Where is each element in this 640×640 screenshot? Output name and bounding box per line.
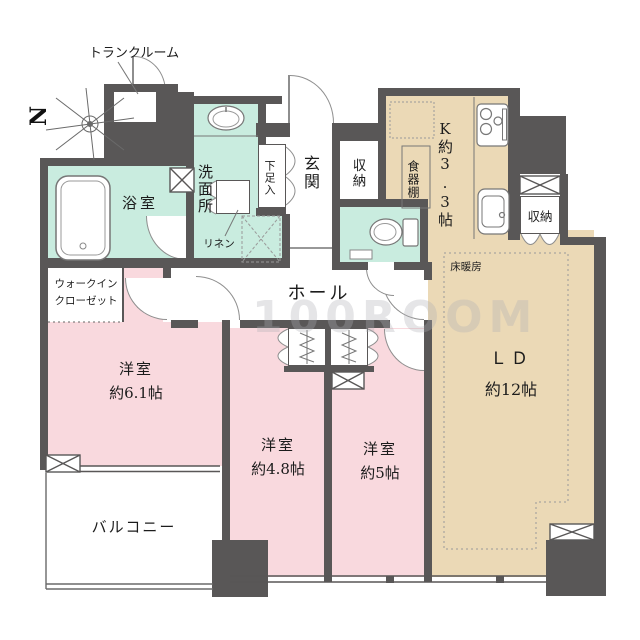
wall-stub <box>386 576 394 583</box>
wall <box>176 96 282 104</box>
bedroom1-name-label: 洋室 <box>80 358 192 379</box>
wall <box>594 520 606 542</box>
living-name-label: ＬＤ <box>464 344 558 369</box>
compass-north-label: N <box>26 106 52 126</box>
kitchen-label: K約3.3帖 <box>437 120 452 220</box>
wall <box>394 262 428 270</box>
washroom-label: 洗面所 <box>197 146 212 232</box>
wall <box>424 262 432 280</box>
wall <box>560 174 568 240</box>
wall <box>282 214 290 266</box>
wall <box>332 262 368 270</box>
bedroom3-name-label: 洋室 <box>334 438 426 459</box>
bedroom2-name-label: 洋室 <box>232 434 324 455</box>
trunk-room-label: トランクルーム <box>76 42 192 61</box>
wall <box>256 123 290 137</box>
watermark: 100ROOM <box>252 292 538 343</box>
living-size-label: 約12帖 <box>464 376 558 400</box>
wall-column <box>520 116 566 174</box>
wall <box>186 96 194 268</box>
entrance-door-arc <box>290 75 334 123</box>
entrance-storage-label: 収納 <box>350 149 364 197</box>
wic-label-line1: ウォークイン <box>46 276 126 291</box>
wall <box>171 320 198 328</box>
living-dining-floor <box>428 230 594 577</box>
toilet-floor <box>340 207 420 262</box>
bedroom2-door-arc <box>196 276 240 320</box>
kitchen-storage-label: 収納 <box>520 206 560 225</box>
floor-heating-label: 床暖房 <box>440 259 492 274</box>
bedroom3-size-label: 約5帖 <box>334 462 426 483</box>
wall <box>40 158 190 166</box>
wall-column <box>212 540 268 597</box>
entrance-label: 玄関 <box>302 142 318 204</box>
linen-label: リネン <box>198 236 240 251</box>
wall-column <box>546 540 606 596</box>
wall <box>40 158 48 470</box>
wall <box>324 372 332 582</box>
wall <box>163 263 171 278</box>
shoe-cabinet-label: 下足入 <box>264 147 275 209</box>
wall <box>420 207 428 262</box>
floor-plan: N <box>0 0 640 640</box>
wall <box>378 88 520 96</box>
wall <box>332 207 340 267</box>
entrance-door-leaf <box>288 75 290 123</box>
linen-closet <box>216 180 250 214</box>
bedroom1-size-label: 約6.1帖 <box>80 382 192 403</box>
bedroom2-size-label: 約4.8帖 <box>232 458 324 479</box>
wall <box>508 92 520 240</box>
balcony-label: バルコニー <box>76 516 192 537</box>
trunk-room <box>114 92 156 122</box>
wic-label-line2: クローゼット <box>46 293 126 308</box>
wall <box>594 237 606 527</box>
wall <box>378 92 386 207</box>
cupboard-label: 食器棚 <box>407 151 419 207</box>
bathroom-label: 浴室 <box>110 192 170 213</box>
wall-stub <box>496 576 504 583</box>
